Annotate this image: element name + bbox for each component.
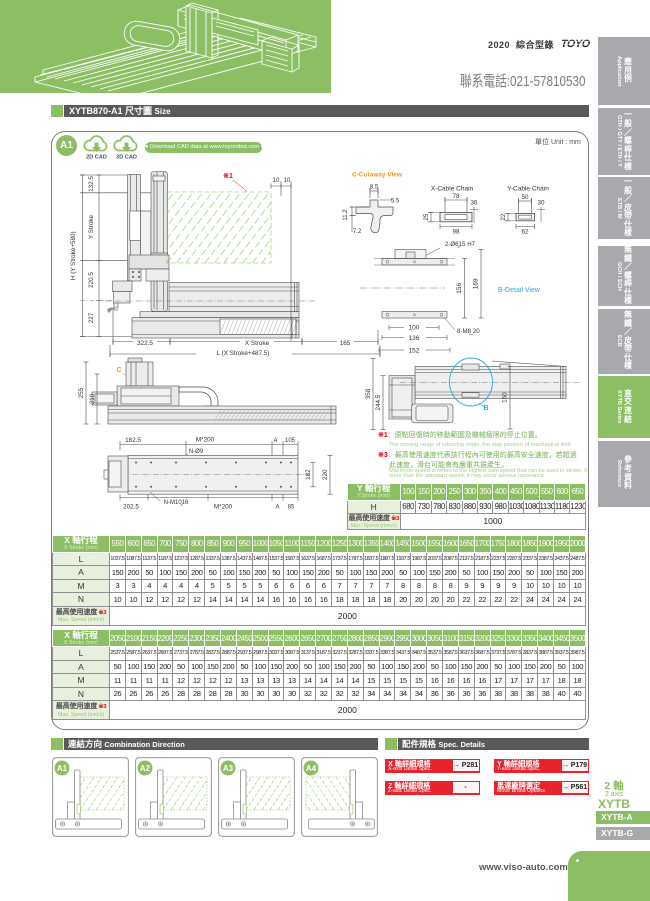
svg-text:B-Detail View: B-Detail View	[498, 287, 541, 294]
svg-text:2-Ø6̳15 H7: 2-Ø6̳15 H7	[445, 241, 476, 248]
svg-text:A1: A1	[57, 764, 68, 773]
svg-text:160: 160	[502, 392, 509, 403]
svg-text:7.2: 7.2	[353, 229, 362, 235]
svg-text:244.5: 244.5	[375, 394, 382, 410]
svg-text:A2: A2	[140, 764, 151, 773]
svg-text:N-Ø9: N-Ø9	[189, 449, 204, 455]
svg-text:50: 50	[521, 194, 529, 201]
svg-text:C-Cutaway View: C-Cutaway View	[352, 172, 403, 179]
svg-text:Y-Cable Chain: Y-Cable Chain	[507, 186, 549, 193]
svg-text:105: 105	[285, 438, 296, 444]
svg-text:8-M8̲ 20: 8-M8̲ 20	[457, 328, 480, 335]
svg-text:X-Cable Chain: X-Cable Chain	[431, 186, 474, 193]
svg-text:X Stroke: X Stroke	[245, 340, 270, 347]
svg-text:25: 25	[424, 213, 430, 220]
svg-text:98: 98	[452, 229, 460, 236]
svg-text:136: 136	[409, 335, 420, 342]
svg-text:182: 182	[305, 469, 312, 480]
svg-text:A4: A4	[306, 764, 317, 773]
svg-text:M*200: M*200	[196, 437, 215, 444]
svg-text:85: 85	[288, 505, 295, 511]
svg-text:152: 152	[409, 348, 420, 355]
svg-text:30: 30	[537, 200, 545, 207]
svg-text:10: 10	[284, 178, 291, 184]
svg-text:227: 227	[88, 312, 95, 323]
svg-text:132.5: 132.5	[88, 176, 95, 192]
svg-text:N-M10̳16: N-M10̳16	[164, 500, 189, 506]
svg-text:A: A	[275, 505, 279, 511]
svg-text:※1: ※1	[223, 172, 233, 180]
svg-text:100: 100	[409, 325, 420, 332]
svg-text:H (Y Stroke+580): H (Y Stroke+580)	[70, 231, 77, 280]
svg-text:322.5: 322.5	[137, 340, 153, 347]
svg-text:M*200: M*200	[214, 504, 233, 511]
svg-text:220.5: 220.5	[88, 272, 95, 288]
svg-text:A: A	[273, 438, 277, 444]
svg-text:358: 358	[365, 388, 372, 399]
svg-text:165: 165	[340, 340, 351, 347]
svg-text:A3: A3	[223, 764, 234, 773]
svg-text:220: 220	[322, 469, 329, 480]
svg-text:78: 78	[452, 193, 460, 200]
svg-text:36: 36	[470, 200, 478, 207]
svg-text:255: 255	[78, 387, 85, 398]
svg-text:8.5: 8.5	[370, 185, 379, 191]
svg-text:169: 169	[473, 278, 480, 289]
svg-text:22: 22	[501, 213, 507, 220]
svg-text:5.5: 5.5	[391, 199, 400, 205]
svg-text:L (X Stroke+487.5): L (X Stroke+487.5)	[217, 350, 270, 357]
svg-text:C: C	[116, 367, 121, 374]
svg-text:182.5: 182.5	[125, 437, 141, 444]
svg-text:10: 10	[273, 178, 280, 184]
svg-text:210: 210	[89, 393, 96, 404]
svg-text:202.5: 202.5	[123, 504, 139, 511]
svg-text:Y Stroke: Y Stroke	[88, 214, 95, 239]
svg-text:62: 62	[521, 229, 529, 236]
svg-text:156: 156	[456, 282, 463, 293]
svg-text:B: B	[483, 405, 488, 412]
svg-text:11.2: 11.2	[343, 209, 349, 221]
